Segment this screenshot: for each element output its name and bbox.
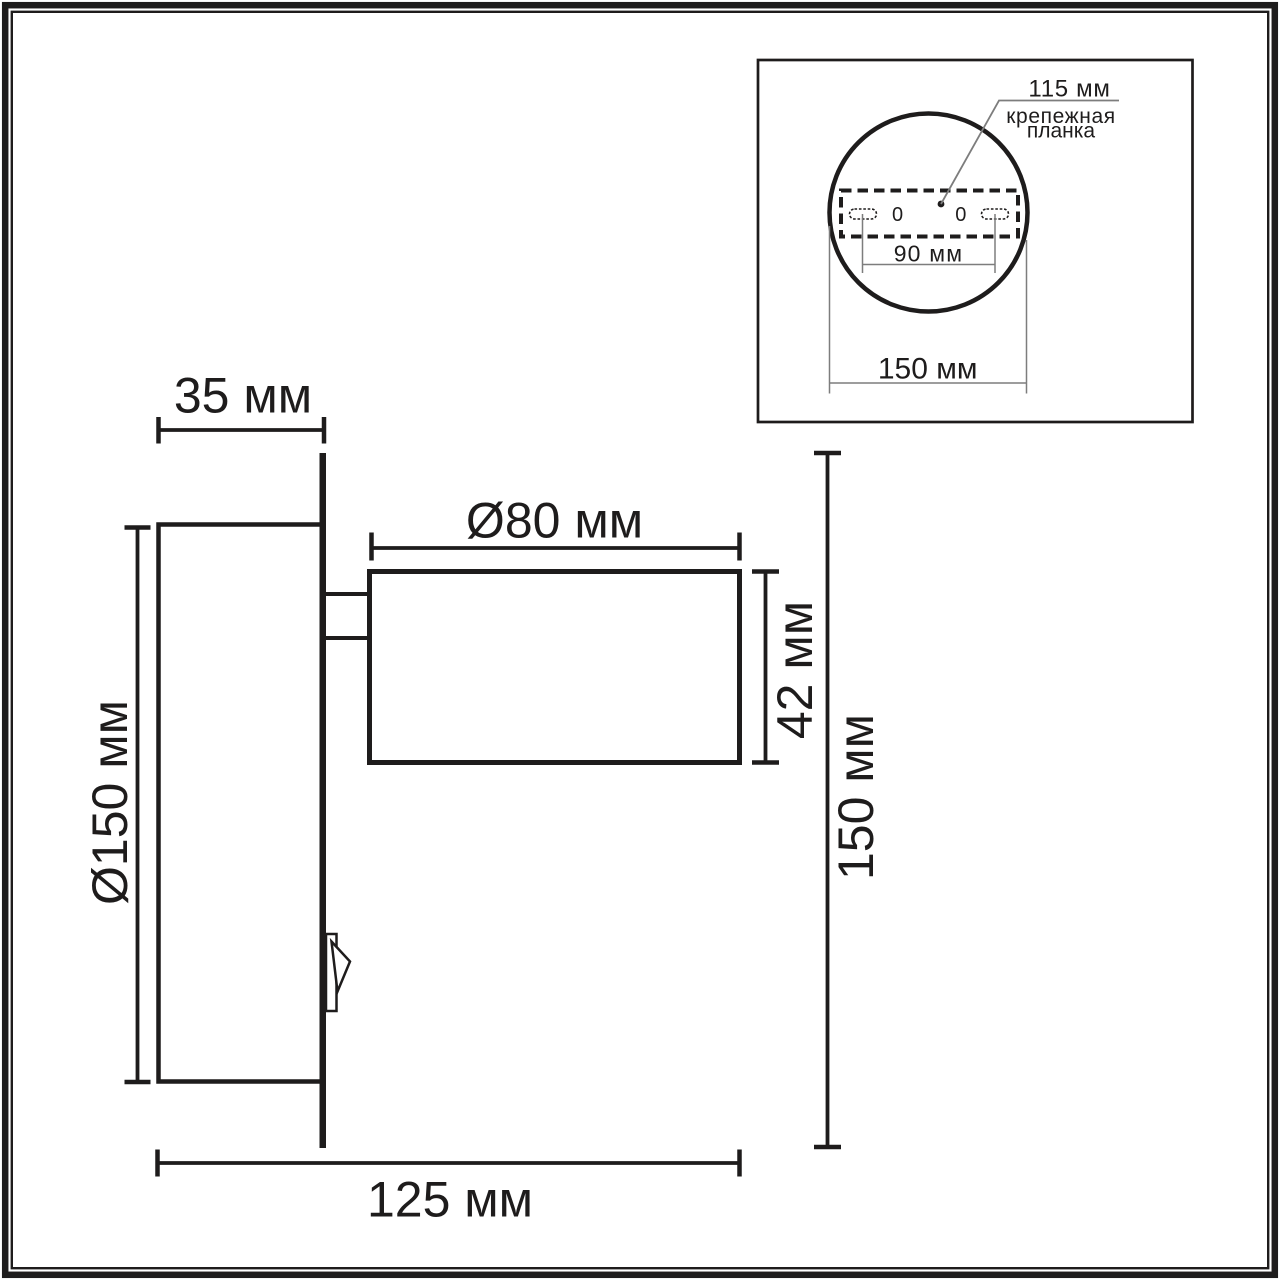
- svg-text:0: 0: [892, 204, 903, 226]
- svg-text:35 мм: 35 мм: [174, 368, 312, 424]
- svg-text:115 мм: 115 мм: [1028, 76, 1110, 103]
- svg-text:42 мм: 42 мм: [767, 601, 823, 739]
- svg-text:150 мм: 150 мм: [878, 353, 978, 386]
- svg-text:Ø150 мм: Ø150 мм: [82, 700, 138, 905]
- svg-text:Ø80 мм: Ø80 мм: [466, 493, 643, 549]
- svg-text:150 мм: 150 мм: [828, 714, 884, 880]
- svg-text:0: 0: [955, 204, 966, 226]
- svg-text:125 мм: 125 мм: [367, 1172, 533, 1228]
- svg-text:планка: планка: [1027, 120, 1096, 143]
- svg-text:90 мм: 90 мм: [894, 241, 964, 267]
